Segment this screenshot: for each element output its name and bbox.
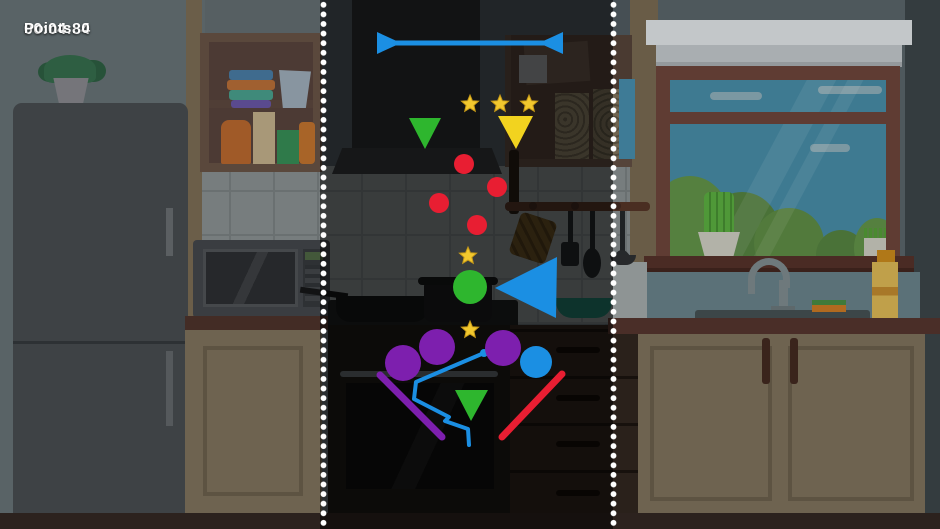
game-pieces-layer	[0, 0, 940, 529]
red-ball[interactable]	[454, 154, 474, 174]
star-pickup[interactable]	[520, 95, 537, 111]
star-pickup[interactable]	[459, 247, 476, 263]
red-ball[interactable]	[487, 177, 507, 197]
red-ball[interactable]	[467, 215, 487, 235]
blue-ball[interactable]	[520, 346, 552, 378]
star-pickup[interactable]	[461, 321, 478, 337]
star-pickup[interactable]	[461, 95, 478, 111]
purple-ball[interactable]	[485, 330, 521, 366]
blue-triangle-left[interactable]	[495, 257, 557, 318]
purple-ball[interactable]	[385, 345, 421, 381]
red-ball[interactable]	[429, 193, 449, 213]
hud: Points: 0 00:04:84	[24, 18, 90, 41]
green-triangle-bottom[interactable]	[455, 390, 488, 421]
game-screen: Points: 0 00:04:84	[0, 0, 940, 529]
green-ball[interactable]	[453, 270, 487, 304]
points-label: Points: 0	[24, 18, 90, 40]
red-ramp[interactable]	[502, 374, 562, 437]
yellow-triangle[interactable]	[498, 116, 533, 149]
blue-double-arrow-bar-right-head[interactable]	[539, 32, 563, 54]
star-pickup[interactable]	[491, 95, 508, 111]
green-triangle-top[interactable]	[409, 118, 441, 149]
purple-ball[interactable]	[419, 329, 455, 365]
purple-ramp[interactable]	[380, 375, 442, 437]
blue-double-arrow-bar-left-head[interactable]	[377, 32, 401, 54]
